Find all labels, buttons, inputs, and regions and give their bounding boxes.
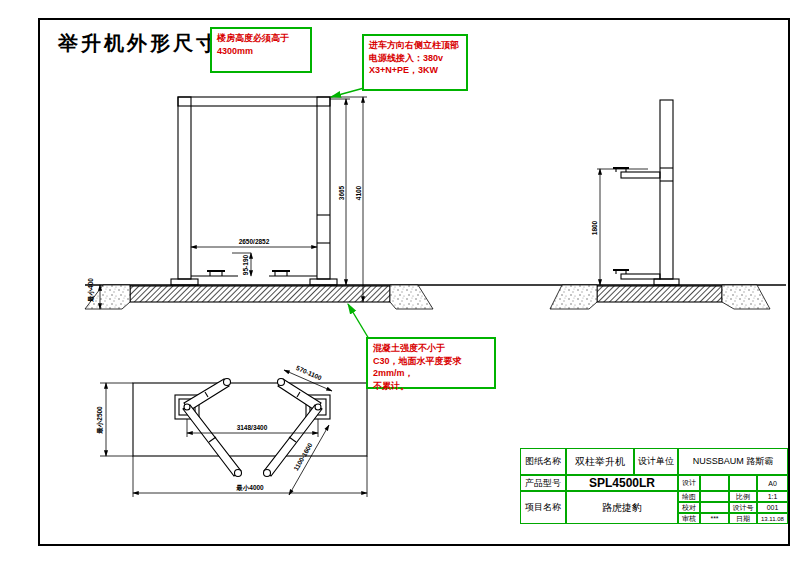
note-building-height: 楼房高度必须高于 4300mm: [210, 27, 312, 73]
side-foundation: [550, 285, 770, 309]
design-unit-label: 设计单位: [634, 448, 678, 475]
paper-size-value: A0: [757, 475, 788, 491]
dim-front-width: 2650/2852: [239, 238, 270, 245]
design-signature-cell: [700, 475, 729, 491]
draft-label: 绘图: [678, 491, 700, 502]
note-power-supply: 进车方向右侧立柱顶部 电源线接入：380v X3+N+PE，3KW: [362, 34, 468, 91]
product-model-value: SPL4500LR: [566, 475, 678, 491]
audit-signature-cell: ***: [700, 513, 729, 524]
design-label: 设计: [678, 475, 700, 491]
dim-front-height-total: 4100: [355, 185, 362, 200]
draft-signature-cell: [700, 491, 729, 502]
project-name-label: 项目名称: [520, 491, 566, 524]
audit-label: 审核: [678, 513, 700, 524]
dim-plan-bay-depth: 最小2500: [96, 406, 104, 435]
dim-front-height-inner: 3665: [338, 185, 345, 200]
dim-plan-bay-width: 最小4000: [235, 484, 264, 492]
front-view: [85, 97, 433, 309]
dim-plan-anchor-span: 3148/3400: [237, 424, 268, 431]
scale-value: 1:1: [757, 491, 788, 502]
design-spare-cell: [729, 475, 757, 491]
dim-front-pad-height: 95-190: [242, 255, 249, 276]
dim-foundation-depth: 最小400: [87, 278, 95, 303]
design-no-value: 001: [757, 502, 788, 513]
side-dimensions: [597, 169, 648, 285]
check-label: 校对: [678, 502, 700, 513]
front-pad-right: [272, 271, 290, 276]
dim-side-lift-height: 1800: [591, 220, 598, 235]
side-view: [550, 100, 770, 309]
front-pad-left: [207, 271, 225, 276]
note-concrete-requirement: 混凝土强度不小于 C30，地面水平度要求2mm/m， 不累计。: [366, 337, 496, 389]
scale-label: 比例: [729, 491, 757, 502]
project-name-value: 路虎捷豹: [566, 491, 678, 524]
date-value: 13.11.08: [757, 513, 788, 524]
front-dimensions: [100, 97, 367, 309]
drawing-name-value: 双柱举升机: [566, 448, 634, 475]
title-block: 图纸名称 双柱举升机 设计单位 NUSSBAUM 路斯霸 产品型号 SPL450…: [520, 448, 788, 524]
dim-plan-arm-short: 570-1100: [295, 364, 323, 382]
check-signature-cell: [700, 502, 729, 513]
side-pad-lower: [613, 270, 629, 274]
drawing-name-label: 图纸名称: [520, 448, 566, 475]
design-no-label: 设计号: [729, 502, 757, 513]
front-foundation: [85, 285, 433, 309]
date-label: 日期: [729, 513, 757, 524]
plan-dimensions: [100, 370, 367, 497]
product-model-label: 产品型号: [520, 475, 566, 491]
design-unit-value: NUSSBAUM 路斯霸: [678, 448, 788, 475]
